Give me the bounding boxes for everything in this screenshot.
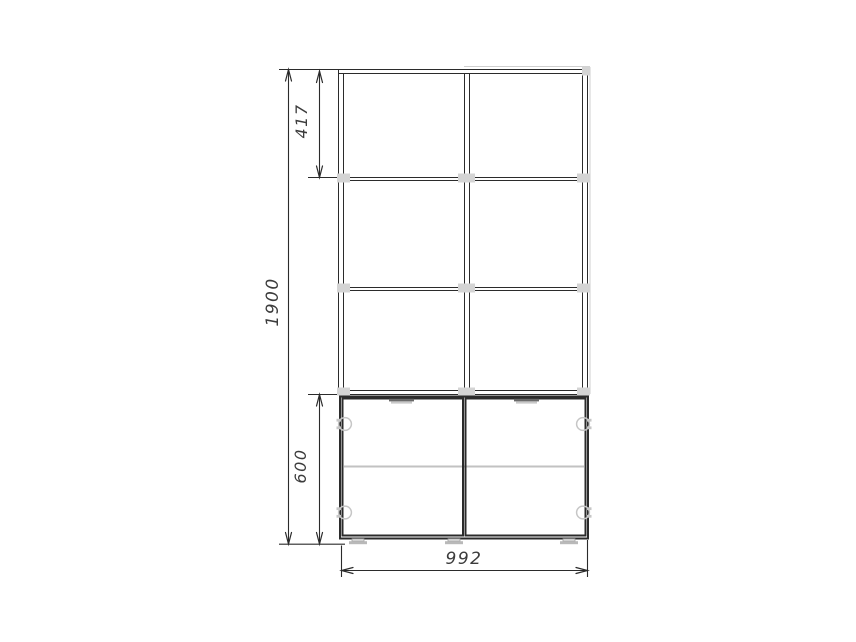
connector-block bbox=[582, 67, 590, 76]
handle-bar bbox=[389, 399, 414, 402]
shelves bbox=[308, 178, 583, 291]
dim-label-width-overall: 992 bbox=[446, 549, 483, 569]
hinge-right-top bbox=[577, 418, 592, 431]
shelf-unit bbox=[279, 67, 590, 396]
hinge-tab bbox=[587, 515, 592, 518]
connector-block bbox=[577, 388, 590, 396]
foot-post bbox=[448, 539, 460, 541]
handle-bar bbox=[514, 399, 539, 402]
foot-post bbox=[563, 539, 575, 541]
foot-base bbox=[349, 541, 367, 544]
hinge-tab bbox=[587, 426, 592, 429]
connector-block bbox=[337, 284, 350, 293]
hinge-right-bottom bbox=[577, 506, 592, 519]
foot-post bbox=[352, 539, 364, 541]
dim-height-total: 1900 bbox=[263, 70, 292, 545]
hinge-tab bbox=[337, 426, 342, 429]
connector-block bbox=[337, 174, 350, 183]
connector-block bbox=[337, 388, 350, 396]
hinge-tab bbox=[587, 507, 592, 510]
dim-width-overall: 992 bbox=[342, 549, 588, 574]
foot-center bbox=[445, 539, 463, 544]
drawing-canvas: 1900 417 600 992 bbox=[0, 0, 856, 642]
foot-base bbox=[445, 541, 463, 544]
handle-recess bbox=[516, 401, 537, 403]
furniture-elevation-drawing: 1900 417 600 992 bbox=[0, 0, 856, 642]
foot-left bbox=[349, 539, 367, 544]
handle-recess bbox=[391, 401, 412, 403]
foot-base bbox=[560, 541, 578, 544]
dim-height-base-cabinet: 600 bbox=[291, 395, 323, 545]
dim-label-top-compartment: 417 bbox=[292, 103, 311, 138]
dim-height-top-compartment: 417 bbox=[292, 71, 323, 178]
connector-block bbox=[458, 284, 475, 293]
shelf-connectors bbox=[337, 67, 590, 396]
hinge-left-top bbox=[337, 418, 352, 431]
connector-block bbox=[577, 284, 590, 293]
hinge-tab bbox=[587, 419, 592, 422]
foot-right bbox=[560, 539, 578, 544]
dim-label-height-total: 1900 bbox=[263, 277, 283, 326]
dimensions: 1900 417 600 992 bbox=[263, 70, 588, 578]
right-door-handle bbox=[514, 399, 539, 404]
dim-label-base-cabinet: 600 bbox=[291, 448, 310, 483]
hinge-left-bottom bbox=[337, 506, 352, 519]
hinge-tab bbox=[337, 419, 342, 422]
hinge-tab bbox=[337, 507, 342, 510]
base-cabinet bbox=[337, 397, 592, 545]
connector-block bbox=[458, 388, 475, 396]
left-door-handle bbox=[389, 399, 414, 404]
connector-block bbox=[577, 174, 590, 183]
hinge-tab bbox=[337, 515, 342, 518]
cabinet-feet bbox=[349, 539, 578, 544]
connector-block bbox=[458, 174, 475, 183]
shelf-unit-panels bbox=[279, 67, 590, 395]
